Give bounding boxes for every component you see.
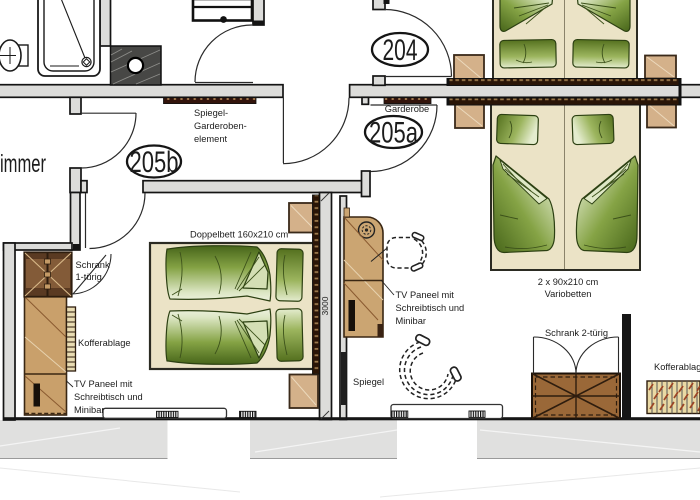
- svg-text:205a: 205a: [369, 117, 418, 150]
- svg-text:Variobetten: Variobetten: [545, 289, 592, 299]
- svg-text:Schrank: Schrank: [76, 260, 110, 270]
- svg-text:TV Paneel mit: TV Paneel mit: [396, 290, 455, 300]
- svg-text:205b: 205b: [130, 146, 179, 179]
- svg-text:Schrank 2-türig: Schrank 2-türig: [545, 328, 608, 338]
- svg-text:Minibar: Minibar: [74, 405, 104, 415]
- svg-text:2 x 90x210 cm: 2 x 90x210 cm: [538, 277, 599, 287]
- svg-text:Kofferablage: Kofferablage: [78, 338, 131, 348]
- svg-text:Schreibtisch und: Schreibtisch und: [74, 392, 143, 402]
- svg-text:204: 204: [383, 34, 418, 67]
- svg-text:Kofferablage: Kofferablage: [654, 362, 700, 372]
- svg-text:3000: 3000: [320, 296, 330, 315]
- svg-text:Minibar: Minibar: [396, 316, 426, 326]
- svg-text:Spiegel-: Spiegel-: [194, 108, 228, 118]
- svg-text:Spiegel: Spiegel: [353, 377, 384, 387]
- svg-text:1-türig: 1-türig: [76, 272, 102, 282]
- svg-text:Schreibtisch und: Schreibtisch und: [396, 303, 465, 313]
- svg-text:immer: immer: [0, 150, 46, 178]
- svg-text:Garderobe: Garderobe: [385, 104, 429, 114]
- svg-text:Garderoben-: Garderoben-: [194, 121, 247, 131]
- svg-text:element: element: [194, 134, 227, 144]
- svg-text:TV Paneel mit: TV Paneel mit: [74, 379, 133, 389]
- svg-text:Doppelbett 160x210 cm: Doppelbett 160x210 cm: [190, 230, 288, 240]
